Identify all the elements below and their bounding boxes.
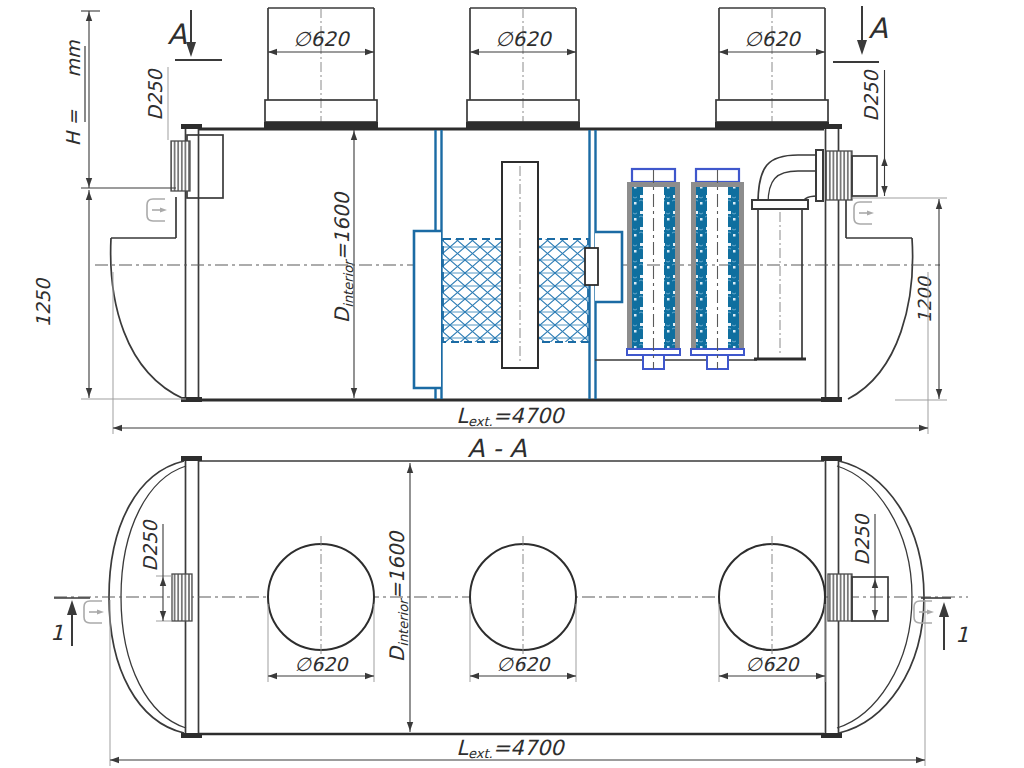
detail-marker-label: 1 [50, 621, 63, 645]
d-interior-value: =1600 [385, 530, 409, 600]
manhole-opening-1 [268, 536, 374, 668]
outlet-corrugated-coupling [828, 574, 852, 621]
inlet-spigot-box [187, 135, 223, 198]
section-cut-marker-left: A [167, 10, 222, 60]
section-marker-label: A [167, 18, 186, 51]
inlet-invert-label: 1250 [32, 277, 54, 327]
d-interior-sub: interior [396, 597, 411, 647]
dim-manhole-2: ∅620 [470, 27, 576, 55]
circle-dim-label: ∅620 [497, 653, 552, 675]
drawing-canvas: ∅620 ∅620 ∅620 A A [0, 0, 1024, 768]
dim-outlet-d250: D250 [860, 69, 888, 196]
outlet-elbow-assembly [752, 150, 947, 359]
inlet-diameter-label: D250 [144, 68, 166, 121]
section-cut-marker-right: A [833, 6, 888, 62]
dim-outlet-invert-1200: 1200 [895, 199, 947, 400]
coalescer-pack [443, 162, 588, 368]
dim-d-interior-side: Dinterior=1600 [330, 130, 357, 398]
h-units-label: mm [62, 40, 84, 78]
inlet-diameter-label: D250 [139, 519, 161, 572]
drawing-sheet: ∅620 ∅620 ∅620 A A [0, 0, 1024, 768]
inlet-assembly-plan: D250 [139, 519, 192, 621]
filter-cartridge-2 [691, 169, 744, 369]
inlet-corrugated-coupling [172, 574, 192, 621]
detail-marker-label: 1 [955, 623, 968, 647]
l-ext-sub: ext. [468, 414, 493, 429]
outlet-diameter-label: D250 [860, 69, 882, 122]
dim-manhole-1: ∅620 [268, 27, 374, 55]
d-interior-sub: interior [341, 258, 356, 308]
manhole-riser-3 [715, 8, 829, 128]
section-title: A - A [467, 434, 526, 463]
flow-direction-icon [854, 202, 874, 224]
manhole-riser-2 [466, 8, 580, 128]
svg-text:Dinterior=1600: Dinterior=1600 [385, 530, 411, 663]
h-label: H = [62, 109, 84, 146]
outlet-diameter-label: D250 [851, 513, 873, 566]
right-head-profile [846, 197, 913, 399]
baffle-wall-1 [414, 130, 442, 399]
manhole-dim-label: ∅620 [293, 27, 351, 51]
elbow-flange-ring [816, 150, 823, 201]
l-ext-sub: ext. [468, 746, 493, 761]
dim-d-interior-section: Dinterior=1600 [385, 463, 413, 732]
dim-inlet-d250: D250 [144, 68, 166, 121]
outlet-invert-label: 1200 [914, 276, 935, 323]
outlet-assembly-plan: D250 [828, 513, 888, 621]
circle-dim-label: ∅620 [746, 653, 801, 675]
flow-direction-icon [84, 601, 104, 623]
baffle-wall-2 [585, 130, 622, 399]
manhole-riser-1 [264, 8, 378, 128]
detail-marker-right: 1 [921, 598, 969, 650]
svg-text:Dinterior=1600: Dinterior=1600 [330, 191, 356, 324]
manhole-dim-label: ∅620 [744, 27, 802, 51]
dim-manhole-3: ∅620 [719, 27, 825, 55]
svg-text:Lext.=4700: Lext.=4700 [456, 736, 565, 761]
l-ext-value: =4700 [493, 404, 566, 428]
inlet-corrugated-coupling [171, 141, 190, 191]
outlet-spigot-box [852, 577, 888, 621]
manhole-dim-label: ∅620 [495, 27, 553, 51]
baffle-2-plate [585, 248, 598, 285]
svg-text:Lext.=4700: Lext.=4700 [456, 404, 565, 429]
circle-dim-label: ∅620 [295, 653, 350, 675]
left-head-profile [111, 197, 184, 399]
manhole-opening-2 [470, 536, 576, 668]
filter-cartridge-1 [627, 169, 680, 369]
section-marker-label: A [868, 12, 887, 45]
section-view: A - A [50, 434, 968, 766]
flow-direction-icon [147, 199, 167, 221]
l-ext-value: =4700 [493, 736, 566, 760]
inlet-assembly-side [168, 67, 223, 198]
side-view: ∅620 ∅620 ∅620 A A [32, 6, 947, 434]
outlet-spigot-box [852, 156, 877, 196]
d-interior-value: =1600 [330, 191, 354, 261]
manhole-opening-3 [719, 536, 825, 668]
outlet-corrugated-coupling [826, 151, 852, 200]
